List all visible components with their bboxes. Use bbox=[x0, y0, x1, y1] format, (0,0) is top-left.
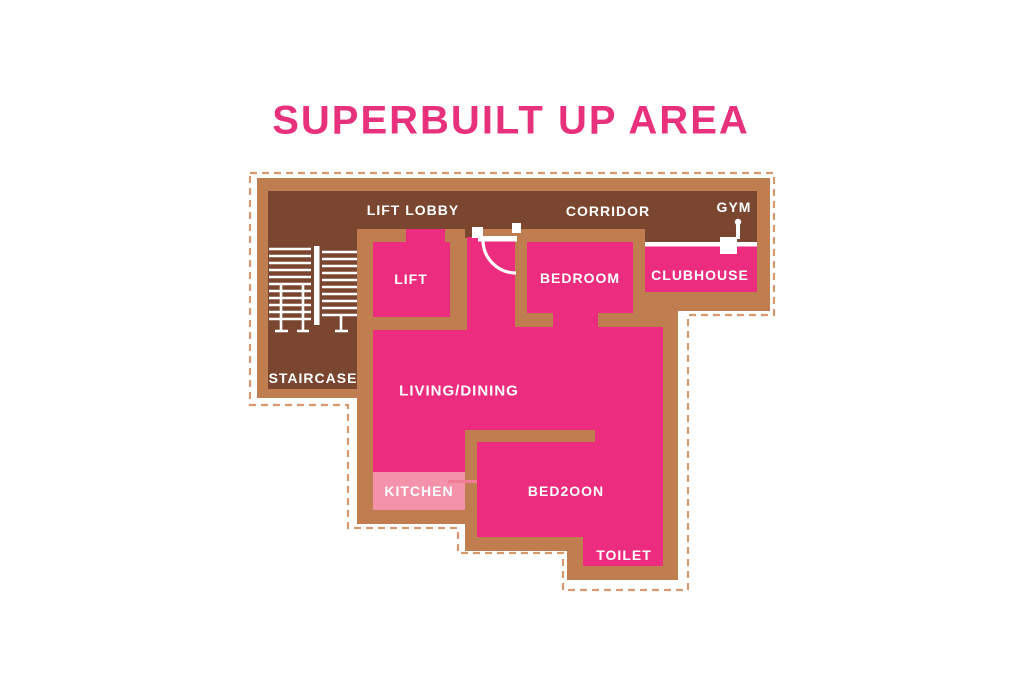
label-toilet: TOILET bbox=[596, 547, 652, 563]
clubhouse-front-line bbox=[645, 242, 757, 247]
label-clubhouse: CLUBHOUSE bbox=[651, 267, 749, 283]
floor-plan-svg bbox=[0, 0, 1024, 683]
label-corridor: CORRIDOR bbox=[566, 203, 650, 219]
label-kitchen: KITCHEN bbox=[384, 483, 453, 499]
label-gym: GYM bbox=[717, 199, 752, 215]
lift-door-gap bbox=[406, 229, 445, 243]
label-bedroom2: BED2OON bbox=[528, 483, 604, 499]
label-bedroom: BEDROOM bbox=[540, 270, 620, 286]
label-lift: LIFT bbox=[394, 271, 428, 287]
floor-plan-figure: SUPERBUILT UP AREA bbox=[0, 0, 1024, 683]
label-lift-lobby: LIFT LOBBY bbox=[367, 202, 459, 218]
label-staircase: STAIRCASE bbox=[269, 370, 358, 386]
label-living-dining: LIVING/DINING bbox=[399, 383, 519, 400]
